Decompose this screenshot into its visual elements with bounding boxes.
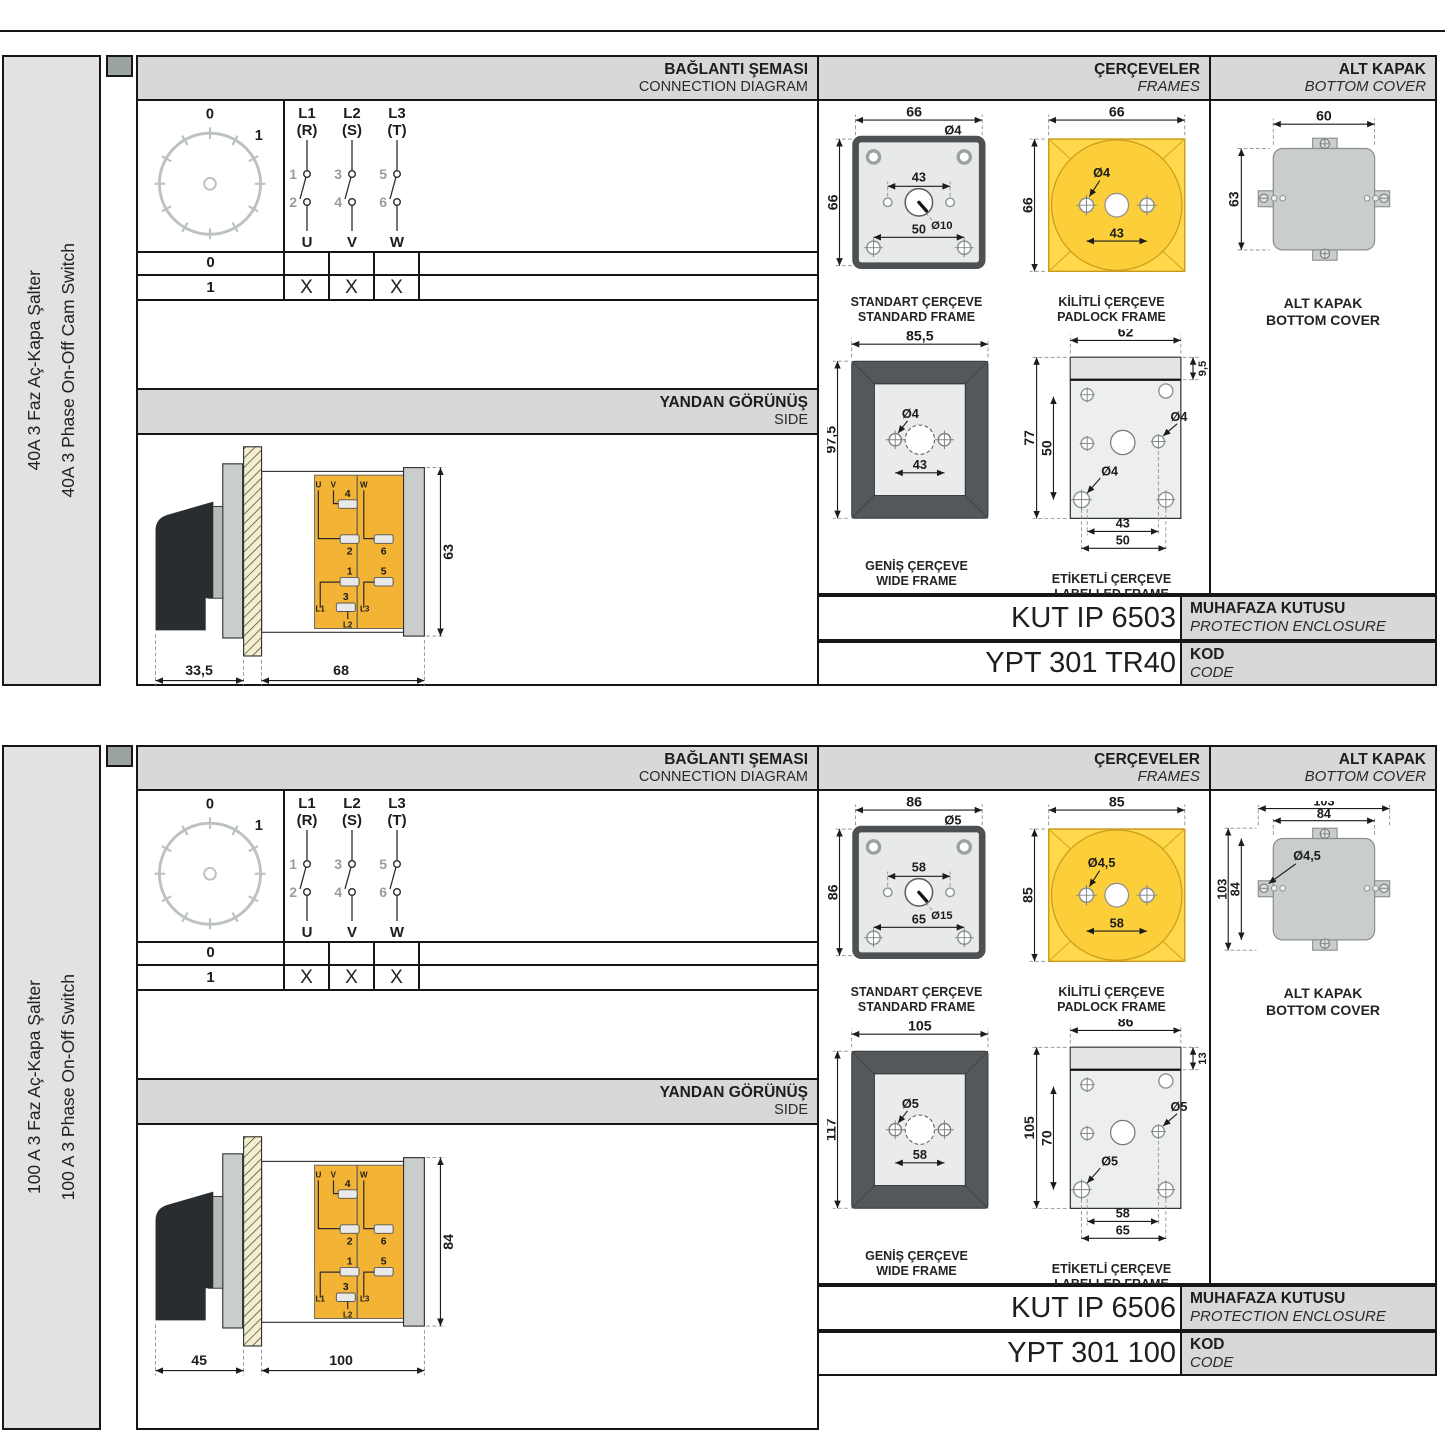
terminal-block (315, 1165, 404, 1318)
dim-bottom-spacing: 50 (911, 222, 925, 237)
phase-label: L3 (388, 105, 406, 122)
switch-position-dial: 0 1 (138, 101, 281, 249)
phase-label: (R) (297, 812, 318, 829)
dim-hole-left: Ø4 (1101, 464, 1118, 478)
filler-cell (420, 276, 817, 299)
enclosure-code-value: KUT IP 6503 (817, 595, 1182, 641)
phase-label: (T) (387, 122, 406, 139)
standard-frame-drawing: 66 Ø4 66 (827, 105, 1007, 294)
side-terminal-label: 2 (347, 1237, 353, 1248)
padlock-frame-figure: 85 85 Ø (1022, 795, 1202, 1015)
wide-frame-drawing: 85,5 97,5 (827, 329, 1007, 558)
side-terminal-label: U (316, 480, 322, 489)
terminal-number: 6 (379, 194, 387, 210)
mark-cell (375, 941, 420, 964)
enclosure-code-label: MUHAFAZA KUTUSU PROTECTION ENCLOSURE (1182, 595, 1437, 641)
caption-cover-en: BOTTOM COVER (1266, 1002, 1380, 1019)
header-connection-en: CONNECTION DIAGRAM (639, 769, 808, 786)
dial-cell: 0 1 (138, 791, 285, 941)
mark-cell: X (285, 966, 330, 989)
labelled-frame-figure: 86 13 105 70 (1016, 1019, 1208, 1292)
dim-cover-width: 60 (1316, 111, 1332, 123)
contacts-cell: L1 (R) 1 2 U L2 (285, 791, 817, 941)
dim-height: 66 (827, 194, 842, 210)
side-view-en: SIDE (774, 412, 808, 429)
dim-bottom-2: 50 (1115, 534, 1129, 548)
header-connection-tr: BAĞLANTI ŞEMASI (664, 61, 808, 79)
filler-cell (420, 251, 817, 274)
caption-wide-tr: GENİŞ ÇERÇEVE (865, 559, 968, 574)
phase-label: (T) (387, 812, 406, 829)
table-row-0: 0 (138, 941, 817, 966)
terminal-block (315, 475, 404, 628)
product-name-turkish: 40A 3 Faz Aç-Kapa Şalter (24, 270, 45, 470)
table-row-1: 1 X X X (138, 966, 817, 991)
standard-frame-drawing: 86 Ø5 86 (827, 795, 1007, 984)
product-name-sidebar: 100 A 3 Faz Aç-Kapa Şalter 100 A 3 Phase… (2, 745, 101, 1430)
dim-width: 86 (906, 795, 922, 810)
terminal-number: 2 (289, 884, 297, 900)
side-terminal-label: 6 (381, 1237, 387, 1248)
header-connection-diagram: BAĞLANTI ŞEMASI CONNECTION DIAGRAM (136, 745, 819, 791)
side-terminal-label: L3 (360, 604, 370, 613)
dim-height: 86 (827, 884, 842, 900)
enclosure-label-tr: MUHAFAZA KUTUSU (1190, 600, 1435, 618)
side-terminal-label: V (331, 1170, 337, 1179)
dim-height: 66 (1022, 197, 1037, 213)
dim-cover-inner-width: 84 (1317, 807, 1331, 821)
mark-cell (330, 941, 375, 964)
code-label-en: CODE (1190, 664, 1435, 681)
enclosure-code-value: KUT IP 6506 (817, 1285, 1182, 1331)
mounting-panel-hatch (244, 1137, 262, 1346)
caption-wide-en: WIDE FRAME (865, 574, 968, 589)
dim-height: 77 (1020, 430, 1036, 446)
enclosure-label-en: PROTECTION ENCLOSURE (1190, 618, 1435, 635)
dim-height: 117 (827, 1118, 840, 1141)
product-code-row: YPT 301 TR40 KOD CODE (817, 641, 1437, 686)
padlock-frame-drawing: 85 85 Ø (1022, 795, 1202, 984)
padlock-frame-drawing: 66 66 Ø (1022, 105, 1202, 294)
side-terminal-label: W (360, 1170, 368, 1179)
dim-hole-right: Ø4 (1170, 410, 1187, 424)
frames-panel: 86 Ø5 86 (817, 789, 1211, 1285)
dim-width: 66 (906, 105, 922, 120)
terminal-number: 3 (334, 166, 342, 182)
dim-bottom-spacing: 65 (911, 912, 925, 927)
header-bottom-cover: ALT KAPAK BOTTOM COVER (1209, 745, 1437, 791)
header-bottom-cover: ALT KAPAK BOTTOM COVER (1209, 55, 1437, 101)
dim-cover-inner-height: 84 (1228, 882, 1242, 896)
phase-label: L2 (343, 795, 361, 812)
dim-hole: Ø4 (901, 406, 919, 421)
labelled-frame-drawing: 86 13 105 70 (1016, 1019, 1208, 1261)
diagram-row: 0 1 L1 (R) 1 2 (138, 101, 817, 253)
terminal-number: 3 (334, 856, 342, 872)
product-code-label: KOD CODE (1182, 1331, 1437, 1376)
caption-standard-tr: STANDART ÇERÇEVE (851, 985, 983, 1000)
dim-cover-hole: Ø4,5 (1293, 849, 1320, 863)
dim-width: 85,5 (906, 329, 934, 344)
dim-hole-spacing: 58 (1109, 915, 1123, 930)
dim-cover-height: 63 (1226, 191, 1242, 207)
dial-position-1: 1 (255, 818, 263, 834)
dim-height: 97,5 (827, 426, 840, 454)
dim-hole-spacing: 43 (1109, 225, 1123, 240)
table-row-1: 1 X X X (138, 276, 817, 301)
dim-handle-depth: 45 (191, 1353, 207, 1369)
phase-label: (S) (342, 122, 362, 139)
side-terminal-label: U (316, 1170, 322, 1179)
standard-frame-figure: 66 Ø4 66 (827, 105, 1007, 325)
side-view-en: SIDE (774, 1102, 808, 1119)
product-name-sidebar: 40A 3 Faz Aç-Kapa Şalter 40A 3 Phase On-… (2, 55, 101, 686)
dim-hole: Ø4 (1093, 165, 1111, 180)
dim-body-depth: 100 (329, 1353, 353, 1369)
caption-standard-tr: STANDART ÇERÇEVE (851, 295, 983, 310)
side-terminal-label: 5 (381, 567, 387, 578)
side-terminal-label: V (331, 480, 337, 489)
dim-bottom-1: 58 (1115, 1207, 1129, 1221)
caption-standard-en: STANDARD FRAME (851, 1000, 983, 1015)
caption-wide-tr: GENİŞ ÇERÇEVE (865, 1249, 968, 1264)
section-content: BAĞLANTI ŞEMASI CONNECTION DIAGRAM ÇERÇE… (136, 745, 1437, 1430)
output-label: V (347, 234, 357, 249)
contacts-cell: L1 (R) 1 2 U L2 (285, 101, 817, 251)
dial-cell: 0 1 (138, 101, 285, 251)
enclosure-label-tr: MUHAFAZA KUTUSU (1190, 1290, 1435, 1308)
mark-cell (375, 251, 420, 274)
dial-position-0: 0 (206, 797, 214, 813)
row-label: 1 (138, 276, 285, 299)
terminal-number: 1 (289, 856, 297, 872)
row-label: 0 (138, 941, 285, 964)
side-view-tr: YANDAN GÖRÜNÜŞ (660, 1084, 808, 1102)
bottom-cover-panel: 60 63 (1209, 99, 1437, 595)
dim-inner-height: 50 (1038, 440, 1054, 456)
side-terminal-label: W (360, 480, 368, 489)
switching-table: 0 1 X X X (138, 941, 817, 991)
output-label: W (390, 924, 405, 939)
enclosure-code-row: KUT IP 6503 MUHAFAZA KUTUSU PROTECTION E… (817, 595, 1437, 641)
header-cover-en: BOTTOM COVER (1305, 768, 1426, 785)
phase-label: L3 (388, 795, 406, 812)
output-label: V (347, 924, 357, 939)
terminal-number: 5 (379, 166, 387, 182)
terminal-number: 4 (334, 884, 342, 900)
row-label: 0 (138, 251, 285, 274)
product-name-english: 40A 3 Phase On-Off Cam Switch (58, 243, 79, 498)
header-cover-tr: ALT KAPAK (1339, 751, 1426, 769)
phase-label: (R) (297, 122, 318, 139)
output-label: W (390, 234, 405, 249)
side-terminal-label: L3 (360, 1294, 370, 1303)
caption-labelled-tr: ETİKETLİ ÇERÇEVE (1052, 1262, 1171, 1277)
product-code-value: YPT 301 TR40 (817, 641, 1182, 686)
dim-width: 66 (1108, 105, 1124, 120)
caption-cover-en: BOTTOM COVER (1266, 312, 1380, 329)
terminal-number: 5 (379, 856, 387, 872)
phase-label: L1 (298, 795, 316, 812)
side-terminal-label: 3 (343, 592, 349, 603)
dim-width: 86 (1117, 1019, 1133, 1030)
wide-frame-figure: 105 117 (827, 1019, 1007, 1292)
mark-cell: X (330, 966, 375, 989)
product-code-value: YPT 301 100 (817, 1331, 1182, 1376)
side-view-drawing: U V 4 2 1 3 L1 L2 W 6 5 L3 45 100 (146, 1133, 468, 1381)
code-label-tr: KOD (1190, 646, 1435, 664)
dim-hole-right: Ø5 (1170, 1100, 1187, 1114)
dim-label-strip: 13 (1197, 1052, 1208, 1064)
phase-label: L1 (298, 105, 316, 122)
dim-center-hole: Ø15 (931, 910, 952, 922)
side-terminal-label: 1 (347, 1257, 353, 1268)
side-view-tr: YANDAN GÖRÜNÜŞ (660, 394, 808, 412)
side-view-band: YANDAN GÖRÜNÜŞ SIDE (138, 1078, 817, 1125)
dim-inner-height: 70 (1038, 1130, 1054, 1146)
dim-height: 85 (1022, 887, 1037, 903)
enclosure-code-row: KUT IP 6506 MUHAFAZA KUTUSU PROTECTION E… (817, 1285, 1437, 1331)
product-section: 40A 3 Faz Aç-Kapa Şalter 40A 3 Phase On-… (0, 55, 1445, 686)
output-label: U (302, 234, 313, 249)
dim-label-strip: 9,5 (1197, 361, 1208, 377)
header-frames: ÇERÇEVELER FRAMES (817, 745, 1211, 791)
dim-width: 85 (1108, 795, 1124, 810)
caption-labelled-tr: ETİKETLİ ÇERÇEVE (1052, 572, 1171, 587)
frames-panel: 66 Ø4 66 (817, 99, 1211, 595)
section-content: BAĞLANTI ŞEMASI CONNECTION DIAGRAM ÇERÇE… (136, 55, 1437, 686)
side-terminal-label: 6 (381, 547, 387, 558)
section-index-notch (106, 55, 133, 77)
caption-standard-en: STANDARD FRAME (851, 310, 983, 325)
header-connection-diagram: BAĞLANTI ŞEMASI CONNECTION DIAGRAM (136, 55, 819, 101)
caption-padlock-tr: KİLİTLİ ÇERÇEVE (1057, 295, 1166, 310)
switch-handle (156, 1192, 214, 1321)
header-cover-en: BOTTOM COVER (1305, 78, 1426, 95)
switch-position-dial: 0 1 (138, 791, 281, 939)
header-frames-tr: ÇERÇEVELER (1094, 61, 1200, 79)
side-terminal-label: 3 (343, 1282, 349, 1293)
mark-cell: X (285, 276, 330, 299)
table-row-0: 0 (138, 251, 817, 276)
output-label: U (302, 924, 313, 939)
side-terminal-label: 4 (345, 1179, 351, 1190)
mark-cell: X (375, 966, 420, 989)
dim-hole-left: Ø5 (1101, 1154, 1118, 1168)
padlock-frame-figure: 66 66 Ø (1022, 105, 1202, 325)
enclosure-label-en: PROTECTION ENCLOSURE (1190, 1308, 1435, 1325)
labelled-frame-drawing: 62 9,5 77 50 (1016, 329, 1208, 571)
side-terminal-label: 5 (381, 1257, 387, 1268)
header-frames-en: FRAMES (1137, 78, 1200, 95)
dim-hole: Ø4,5 (1087, 855, 1115, 870)
row-label: 1 (138, 966, 285, 989)
caption-padlock-en: PADLOCK FRAME (1057, 1000, 1166, 1015)
header-frames: ÇERÇEVELER FRAMES (817, 55, 1211, 101)
header-cover-tr: ALT KAPAK (1339, 61, 1426, 79)
mark-cell: X (330, 276, 375, 299)
dim-corner-hole: Ø5 (944, 812, 961, 827)
dim-height: 105 (1020, 1116, 1036, 1140)
phase-label: (S) (342, 812, 362, 829)
dim-corner-hole: Ø4 (944, 122, 962, 137)
side-view-drawing: U V 4 2 1 3 L1 L2 W 6 5 L3 33,5 68 (146, 443, 468, 691)
product-name-english: 100 A 3 Phase On-Off Switch (58, 974, 79, 1200)
phase-contacts-diagram: L1 (R) 1 2 U L2 (285, 791, 817, 939)
phase-label: L2 (343, 105, 361, 122)
side-view-band: YANDAN GÖRÜNÜŞ SIDE (138, 388, 817, 435)
dim-hole-spacing: 58 (911, 860, 925, 875)
terminal-number: 4 (334, 194, 342, 210)
product-name-turkish: 100 A 3 Faz Aç-Kapa Şalter (24, 980, 45, 1194)
terminal-number: 6 (379, 884, 387, 900)
dim-body-height: 63 (441, 544, 457, 560)
page-top-rule (0, 30, 1445, 32)
filler-cell (420, 966, 817, 989)
switching-table: 0 1 X X X (138, 251, 817, 301)
phase-contacts-diagram: L1 (R) 1 2 U L2 (285, 101, 817, 249)
side-terminal-label: L2 (343, 621, 353, 630)
dim-width: 105 (908, 1019, 932, 1034)
catalog-page: 40A 3 Faz Aç-Kapa Şalter 40A 3 Phase On-… (0, 0, 1445, 1445)
side-terminal-label: 4 (345, 489, 351, 500)
caption-wide-en: WIDE FRAME (865, 1264, 968, 1279)
caption-cover-tr: ALT KAPAK (1266, 295, 1380, 312)
dim-width: 62 (1117, 329, 1133, 340)
product-section: 100 A 3 Faz Aç-Kapa Şalter 100 A 3 Phase… (0, 745, 1445, 1430)
terminal-number: 1 (289, 166, 297, 182)
bottom-cover-panel: 103 84 103 84 (1209, 789, 1437, 1285)
diagram-row: 0 1 L1 (R) 1 2 (138, 791, 817, 943)
dial-position-1: 1 (255, 128, 263, 144)
dim-handle-depth: 33,5 (185, 663, 213, 679)
header-frames-tr: ÇERÇEVELER (1094, 751, 1200, 769)
switch-handle (156, 502, 214, 631)
labelled-frame-figure: 62 9,5 77 50 (1016, 329, 1208, 602)
dim-bottom-1: 43 (1115, 517, 1129, 531)
product-code-label: KOD CODE (1182, 641, 1437, 686)
dim-body-height: 84 (441, 1234, 457, 1250)
wide-frame-figure: 85,5 97,5 (827, 329, 1007, 602)
dim-body-depth: 68 (333, 663, 349, 679)
mark-cell (285, 941, 330, 964)
filler-cell (420, 941, 817, 964)
header-connection-en: CONNECTION DIAGRAM (639, 79, 808, 96)
mark-cell (330, 251, 375, 274)
product-code-row: YPT 301 100 KOD CODE (817, 1331, 1437, 1376)
code-label-en: CODE (1190, 1354, 1435, 1371)
wide-frame-drawing: 105 117 (827, 1019, 1007, 1248)
side-terminal-label: L1 (316, 1294, 326, 1303)
section-index-notch (106, 745, 133, 767)
standard-frame-figure: 86 Ø5 86 (827, 795, 1007, 1015)
dim-cover-outer-height: 103 (1215, 879, 1229, 900)
side-terminal-label: 2 (347, 547, 353, 558)
caption-padlock-tr: KİLİTLİ ÇERÇEVE (1057, 985, 1166, 1000)
side-terminal-label: 1 (347, 567, 353, 578)
dim-hole-spacing: 43 (912, 457, 926, 472)
terminal-number: 2 (289, 194, 297, 210)
connection-diagram-panel: 0 1 L1 (R) 1 2 (136, 99, 819, 686)
code-label-tr: KOD (1190, 1336, 1435, 1354)
dim-hole: Ø5 (901, 1096, 918, 1111)
dim-center-hole: Ø10 (931, 220, 952, 232)
connection-diagram-panel: 0 1 L1 (R) 1 2 (136, 789, 819, 1430)
dim-bottom-2: 65 (1115, 1224, 1129, 1238)
caption-padlock-en: PADLOCK FRAME (1057, 310, 1166, 325)
caption-cover-tr: ALT KAPAK (1266, 985, 1380, 1002)
mounting-panel-hatch (244, 447, 262, 656)
bottom-cover-drawing: 103 84 103 84 (1215, 801, 1431, 984)
side-terminal-label: L1 (316, 604, 326, 613)
header-connection-tr: BAĞLANTI ŞEMASI (664, 751, 808, 769)
enclosure-code-label: MUHAFAZA KUTUSU PROTECTION ENCLOSURE (1182, 1285, 1437, 1331)
side-terminal-label: L2 (343, 1311, 353, 1320)
mark-cell: X (375, 276, 420, 299)
dial-position-0: 0 (206, 107, 214, 123)
mark-cell (285, 251, 330, 274)
dim-hole-spacing: 43 (911, 170, 925, 185)
bottom-cover-drawing: 60 63 (1215, 111, 1431, 294)
dim-hole-spacing: 58 (912, 1147, 926, 1162)
header-frames-en: FRAMES (1137, 768, 1200, 785)
